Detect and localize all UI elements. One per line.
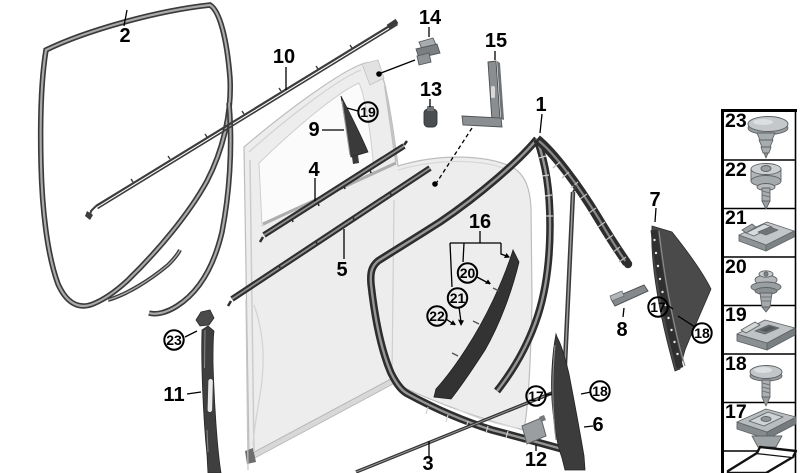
svg-text:20: 20 (460, 265, 476, 281)
svg-text:11: 11 (163, 384, 184, 406)
svg-text:22: 22 (725, 159, 747, 181)
svg-text:22: 22 (429, 308, 445, 324)
svg-text:2: 2 (119, 25, 130, 47)
svg-text:6: 6 (592, 414, 603, 436)
svg-text:5: 5 (336, 259, 347, 281)
svg-text:4: 4 (308, 159, 320, 181)
svg-text:18: 18 (694, 325, 710, 341)
svg-text:13: 13 (420, 79, 442, 101)
svg-text:21: 21 (450, 290, 466, 306)
svg-text:8: 8 (616, 319, 627, 341)
svg-text:9: 9 (308, 119, 319, 141)
svg-text:15: 15 (485, 30, 507, 52)
svg-text:19: 19 (360, 104, 376, 120)
svg-text:21: 21 (725, 207, 747, 229)
svg-text:18: 18 (725, 353, 747, 375)
svg-text:3: 3 (422, 453, 433, 473)
svg-text:10: 10 (273, 46, 295, 68)
svg-text:23: 23 (166, 332, 182, 348)
svg-text:17: 17 (528, 388, 544, 404)
svg-text:7: 7 (649, 189, 660, 211)
svg-text:19: 19 (725, 304, 747, 326)
svg-text:16: 16 (469, 211, 491, 233)
svg-text:23: 23 (725, 110, 747, 132)
svg-text:17: 17 (650, 299, 666, 315)
svg-text:18: 18 (592, 383, 608, 399)
svg-text:14: 14 (419, 7, 442, 29)
svg-text:1: 1 (535, 94, 546, 116)
svg-text:12: 12 (525, 449, 547, 471)
svg-text:20: 20 (725, 256, 747, 278)
